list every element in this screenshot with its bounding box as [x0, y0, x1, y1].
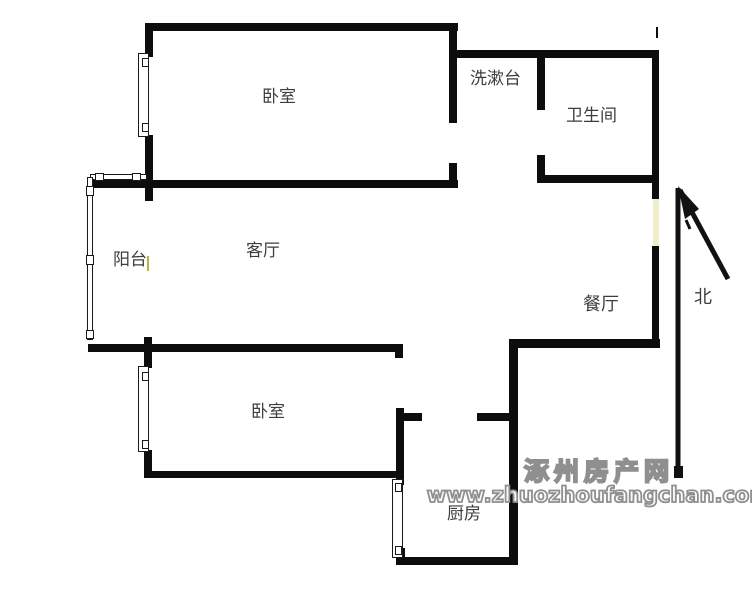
wall-living-bottom-end-cap — [395, 344, 403, 358]
window-mark — [395, 483, 402, 492]
room-label-dining-room: 餐厅 — [583, 295, 619, 315]
wall-bedroom-bottom-bottom — [144, 471, 404, 478]
wall-kitchen-door-stub-left — [402, 413, 422, 421]
room-label-living-room: 客厅 — [246, 242, 280, 261]
room-label-balcony: 阳台 — [113, 251, 147, 270]
room-label-bathroom: 卫生间 — [566, 107, 617, 126]
wall-bathroom-bottom — [537, 175, 659, 183]
wall-kitchen-right — [509, 339, 518, 565]
compass-north-label: 北 — [694, 288, 712, 308]
wall-dining-bottom — [510, 339, 660, 348]
wall-kitchen-bottom — [396, 557, 518, 565]
watermark-site-url: www.zhuozhoufangchan.com — [427, 483, 752, 507]
room-label-bedroom-top: 卧室 — [262, 88, 296, 107]
window-mark — [86, 255, 94, 265]
wall-top-outer — [145, 23, 458, 31]
wall-living-bottom — [88, 344, 403, 352]
wall-living-top — [88, 180, 458, 188]
balcony-cursor-mark — [147, 256, 149, 271]
wall-right-upper — [652, 50, 659, 199]
window-mark — [142, 58, 149, 67]
room-label-washstand: 洗漱台 — [470, 70, 521, 89]
window-mark — [86, 330, 94, 339]
room-label-kitchen: 厨房 — [447, 505, 481, 524]
window-mark — [142, 123, 149, 132]
window-mark — [142, 372, 149, 381]
wall-washstand-top — [450, 50, 659, 58]
wall-bedroom-top-right-upper — [449, 23, 457, 123]
wall-bedroom-top-left-lower — [145, 135, 153, 201]
wall-kitchen-door-stub-right — [477, 413, 513, 421]
window-mark — [132, 173, 141, 181]
floorplan: 卧室 洗漱台 卫生间 阳台 客厅 餐厅 北 卧室 厨房 涿州房产网 www.zh… — [0, 0, 752, 600]
window-mark — [86, 186, 94, 196]
wall-bedroom-top-left-upper — [145, 23, 153, 57]
room-label-bedroom-bottom: 卧室 — [251, 403, 285, 422]
wall-right-top-tick — [656, 27, 658, 38]
wall-bath-divider-upper — [537, 53, 545, 110]
window-mark — [395, 546, 402, 555]
wall-bedroom-bottom-left-upper — [144, 337, 152, 368]
window-mark — [95, 173, 104, 181]
north-arrow — [655, 180, 752, 490]
window-mark — [142, 440, 149, 449]
